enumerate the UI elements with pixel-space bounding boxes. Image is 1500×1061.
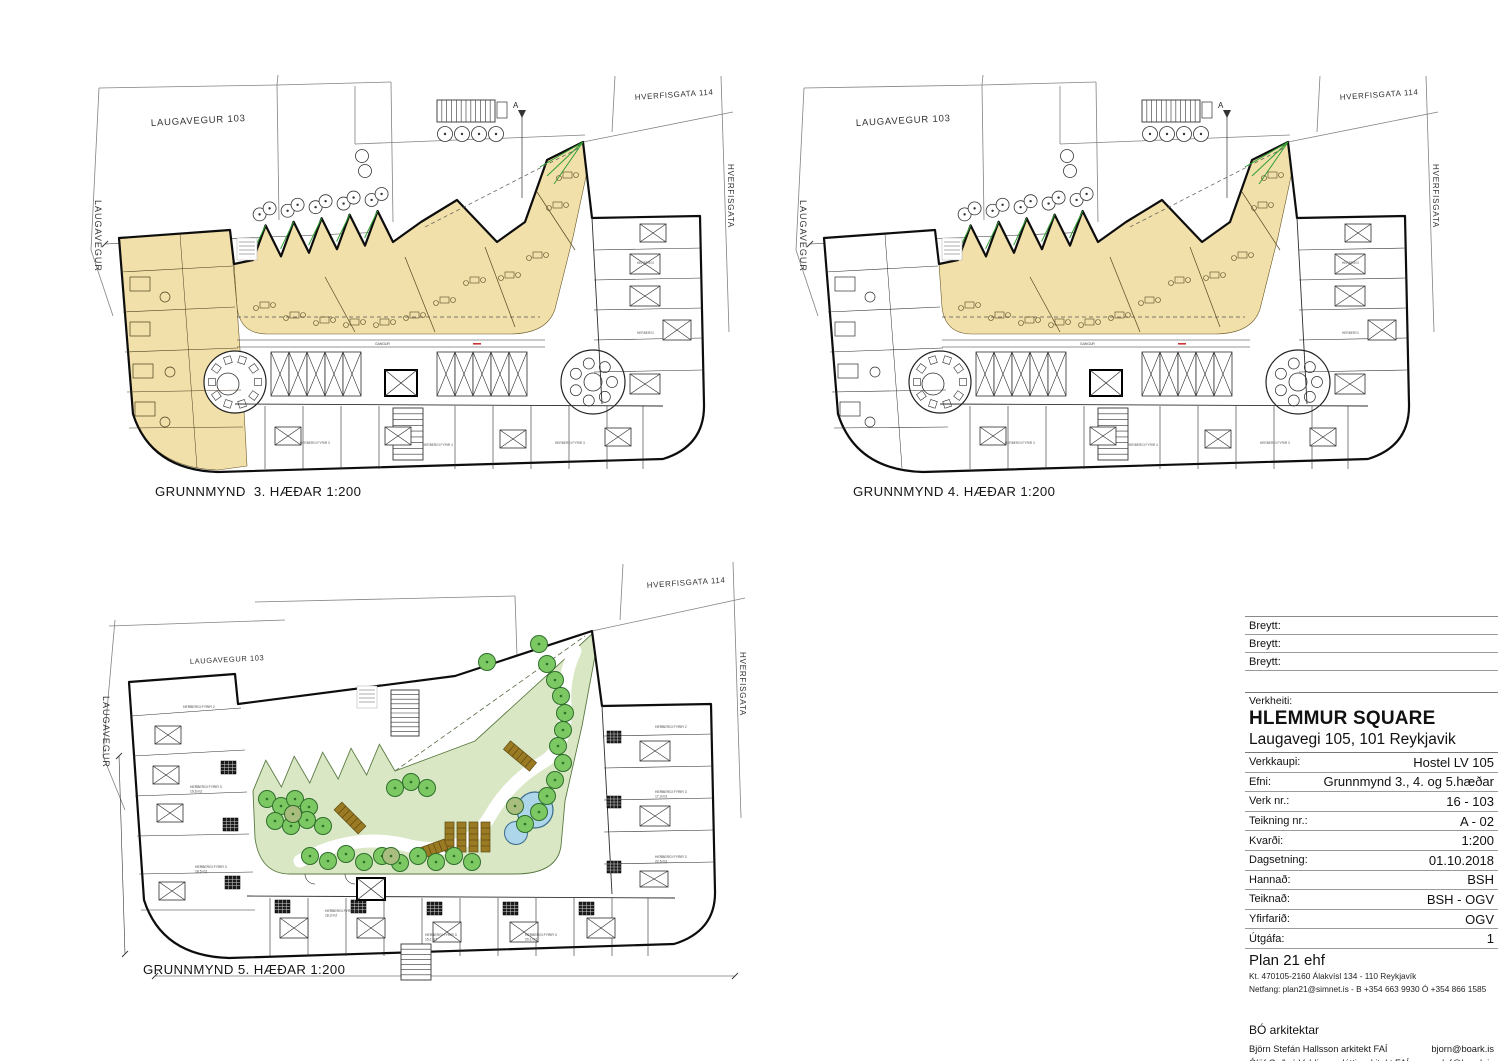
- info-row-label: Teiknað:: [1249, 893, 1290, 905]
- revision-label: Breytt:: [1249, 620, 1281, 632]
- room-label: HERBERGI FYRIR 3: [325, 909, 357, 913]
- info-row: Dagsetning:01.10.2018: [1245, 851, 1498, 871]
- info-row-value: Grunnmynd 3., 4. og 5.hæðar: [1323, 774, 1494, 789]
- info-row-value: 1:200: [1461, 833, 1494, 848]
- architect-rows: Björn Stefán Hallsson arkitekt FAÍbjorn@…: [1249, 1042, 1494, 1061]
- title-block-spacer: [1245, 671, 1498, 692]
- info-row: Hannað:BSH: [1245, 871, 1498, 891]
- room-label: HERBERGI FYRIR 2: [183, 705, 215, 709]
- architect-email: olof@boark.is: [1437, 1056, 1494, 1061]
- info-row: Kvarði:1:200: [1245, 831, 1498, 851]
- street-label-laugavegur: LAUGAVEGUR: [101, 696, 111, 768]
- room-area-label: 20,1 m2: [525, 938, 537, 942]
- street-label-laugavegur: LAUGAVEGUR: [798, 200, 808, 272]
- room-area-label: 17,3 m2: [655, 795, 667, 799]
- revision-row: Breytt:: [1245, 617, 1498, 635]
- street-label-hverfisgata: HVERFISGATA: [738, 652, 747, 716]
- floorplan-5-drawing: LAUGAVEGUR 103LAUGAVEGURHVERFISGATA 114H…: [95, 556, 755, 986]
- svg-text:HERBERGI FYRIR 3: HERBERGI FYRIR 3: [1260, 441, 1290, 445]
- floorplan-3-drawing: ALAUGAVEGUR 103LAUGAVEGURHVERFISGATA 114…: [85, 72, 745, 492]
- street-label-laugavegur: LAUGAVEGUR: [93, 200, 103, 272]
- street-label-hverfisgata-114: HVERFISGATA 114: [635, 88, 714, 102]
- architect-name: Björn Stefán Hallsson arkitekt FAÍ: [1249, 1042, 1387, 1056]
- revision-row: Breytt:: [1245, 653, 1498, 671]
- svg-text:HERBERGI FYRIR 3: HERBERGI FYRIR 3: [1005, 441, 1035, 445]
- drawing-sheet: ALAUGAVEGUR 103LAUGAVEGURHVERFISGATA 114…: [0, 0, 1500, 1061]
- svg-text:HERBERGI: HERBERGI: [1342, 261, 1359, 265]
- architect-row: Björn Stefán Hallsson arkitekt FAÍbjorn@…: [1249, 1042, 1494, 1056]
- corridor-label: GANGUR: [375, 342, 390, 346]
- section-marker-a: A: [513, 101, 519, 110]
- info-row-value: Hostel LV 105: [1413, 755, 1494, 770]
- info-row-value: A - 02: [1460, 814, 1494, 829]
- room-label: HERBERGI FYRIR 3: [655, 790, 687, 794]
- info-row-label: Verkkaupi:: [1249, 756, 1300, 768]
- architect-row: Ólöf Guðný Valdimarsdóttir arkitekt FAÍo…: [1249, 1056, 1494, 1061]
- plan-3-title: GRUNNMYND 3. HÆÐAR 1:200: [155, 484, 361, 499]
- svg-text:HERBERGI FYRIR 3: HERBERGI FYRIR 3: [300, 441, 330, 445]
- room-area-label: 18,5 m2: [195, 870, 207, 874]
- street-label-hverfisgata: HVERFISGATA: [1431, 164, 1440, 228]
- info-row-value: 1: [1487, 931, 1494, 946]
- project-name: HLEMMUR SQUARE: [1249, 708, 1494, 730]
- title-block: Breytt:Breytt:Breytt: Verkheiti: HLEMMUR…: [1245, 616, 1498, 1061]
- floorplan-4: ALAUGAVEGUR 103LAUGAVEGURHVERFISGATA 114…: [790, 72, 1450, 492]
- info-row-value: BSH - OGV: [1427, 892, 1494, 907]
- street-label-hverfisgata-114: HVERFISGATA 114: [1340, 88, 1419, 102]
- street-label-laugavegur-103: LAUGAVEGUR 103: [190, 653, 265, 666]
- info-row-label: Efni:: [1249, 776, 1271, 788]
- info-row-value: OGV: [1465, 912, 1494, 927]
- info-row-label: Yfirfarið:: [1249, 913, 1290, 925]
- architects-name: BÓ arkitektar: [1249, 1023, 1494, 1037]
- info-row: Útgáfa:1: [1245, 929, 1498, 949]
- room-area-label: 15,1 m2: [425, 938, 437, 942]
- room-area-label: 18,3 m2: [325, 914, 337, 918]
- room-label: HERBERGI FYRIR 2: [655, 725, 687, 729]
- floorplan-4-drawing: ALAUGAVEGUR 103LAUGAVEGURHVERFISGATA 114…: [790, 72, 1450, 492]
- room-label: HERBERGI FYRIR 3: [525, 933, 557, 937]
- section-marker-a: A: [1218, 101, 1224, 110]
- info-row: Teiknað:BSH - OGV: [1245, 890, 1498, 910]
- plan-4-title: GRUNNMYND 4. HÆÐAR 1:200: [853, 484, 1055, 499]
- street-label-laugavegur-103: LAUGAVEGUR 103: [151, 113, 246, 129]
- floorplan-5: LAUGAVEGUR 103LAUGAVEGURHVERFISGATA 114H…: [95, 556, 755, 986]
- room-label: HERBERGI FYRIR 3: [195, 865, 227, 869]
- street-label-laugavegur-103: LAUGAVEGUR 103: [856, 113, 951, 129]
- info-row-label: Dagsetning:: [1249, 854, 1308, 866]
- project-section: Verkheiti: HLEMMUR SQUARE Laugavegi 105,…: [1245, 692, 1498, 753]
- info-row: Yfirfarið:OGV: [1245, 910, 1498, 930]
- firm-contact: Netfang: plan21@simnet.is - B +354 663 9…: [1249, 984, 1494, 995]
- room-label: HERBERGI FYRIR 3: [655, 855, 687, 859]
- svg-text:HERBERGI: HERBERGI: [1342, 331, 1359, 335]
- revision-row: Breytt:: [1245, 635, 1498, 653]
- info-row: Verkkaupi:Hostel LV 105: [1245, 753, 1498, 773]
- info-row-label: Hannað:: [1249, 874, 1291, 886]
- project-address: Laugavegi 105, 101 Reykjavik: [1249, 731, 1494, 749]
- info-row-value: BSH: [1467, 872, 1494, 887]
- svg-text:HERBERGI FYRIR 3: HERBERGI FYRIR 3: [555, 441, 585, 445]
- info-row-label: Útgáfa:: [1249, 933, 1284, 945]
- floorplan-3: ALAUGAVEGUR 103LAUGAVEGURHVERFISGATA 114…: [85, 72, 745, 492]
- project-label: Verkheiti:: [1249, 695, 1494, 707]
- info-row-label: Teikning nr.:: [1249, 815, 1308, 827]
- firm-block: Plan 21 ehf Kt. 470105-2160 Álakvísl 134…: [1245, 949, 1498, 995]
- architect-email: bjorn@boark.is: [1431, 1042, 1494, 1056]
- svg-text:HERBERGI FYRIR 4: HERBERGI FYRIR 4: [1128, 443, 1158, 447]
- corridor-label: GANGUR: [1080, 342, 1095, 346]
- info-row: Verk nr.:16 - 103: [1245, 792, 1498, 812]
- info-row: Teikning nr.:A - 02: [1245, 812, 1498, 832]
- svg-text:HERBERGI FYRIR 4: HERBERGI FYRIR 4: [423, 443, 453, 447]
- plan-5-title: GRUNNMYND 5. HÆÐAR 1:200: [143, 962, 345, 977]
- info-row: Efni:Grunnmynd 3., 4. og 5.hæðar: [1245, 773, 1498, 793]
- architect-name: Ólöf Guðný Valdimarsdóttir arkitekt FAÍ: [1249, 1056, 1409, 1061]
- firm-kt: Kt. 470105-2160 Álakvísl 134 - 110 Reykj…: [1249, 971, 1494, 982]
- room-area-label: 19,6 m2: [190, 790, 202, 794]
- revision-rows: Breytt:Breytt:Breytt:: [1245, 617, 1498, 671]
- room-label: HERBERGI FYRIR 3: [190, 785, 222, 789]
- svg-text:HERBERGI: HERBERGI: [637, 261, 654, 265]
- svg-text:HERBERGI: HERBERGI: [637, 331, 654, 335]
- street-label-hverfisgata-114: HVERFISGATA 114: [647, 576, 726, 590]
- info-row-label: Kvarði:: [1249, 835, 1283, 847]
- revision-label: Breytt:: [1249, 656, 1281, 668]
- street-label-hverfisgata: HVERFISGATA: [726, 164, 735, 228]
- architects-block: BÓ arkitektar Björn Stefán Hallsson arki…: [1245, 1021, 1498, 1061]
- room-area-label: 22,5 m2: [655, 860, 667, 864]
- info-rows: Verkkaupi:Hostel LV 105Efni:Grunnmynd 3.…: [1245, 753, 1498, 949]
- info-row-value: 01.10.2018: [1429, 853, 1494, 868]
- revision-label: Breytt:: [1249, 638, 1281, 650]
- firm-name: Plan 21 ehf: [1249, 952, 1494, 969]
- info-row-value: 16 - 103: [1446, 794, 1494, 809]
- room-label: HERBERGI FYRIR 3: [425, 933, 457, 937]
- info-row-label: Verk nr.:: [1249, 795, 1289, 807]
